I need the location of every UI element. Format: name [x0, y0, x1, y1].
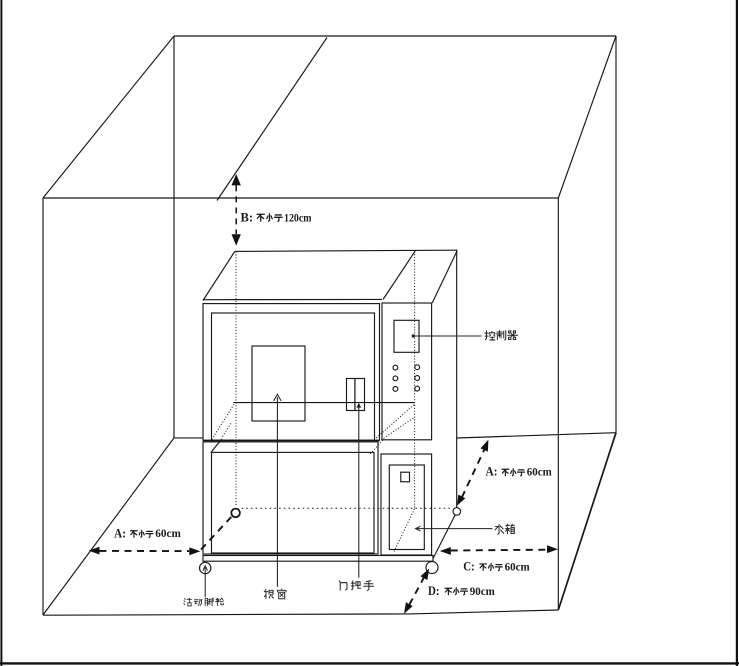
svg-text:60cm: 60cm [155, 528, 181, 540]
svg-text:120cm: 120cm [284, 212, 312, 224]
svg-text:90cm: 90cm [470, 586, 495, 598]
svg-text:B:: B: [241, 210, 254, 225]
svg-text:60cm: 60cm [505, 561, 530, 573]
svg-text:A:: A: [114, 526, 126, 540]
svg-text:60cm: 60cm [527, 467, 552, 479]
svg-text:A:: A: [486, 465, 498, 479]
svg-text:C:: C: [463, 559, 475, 573]
svg-text:D:: D: [428, 584, 440, 598]
